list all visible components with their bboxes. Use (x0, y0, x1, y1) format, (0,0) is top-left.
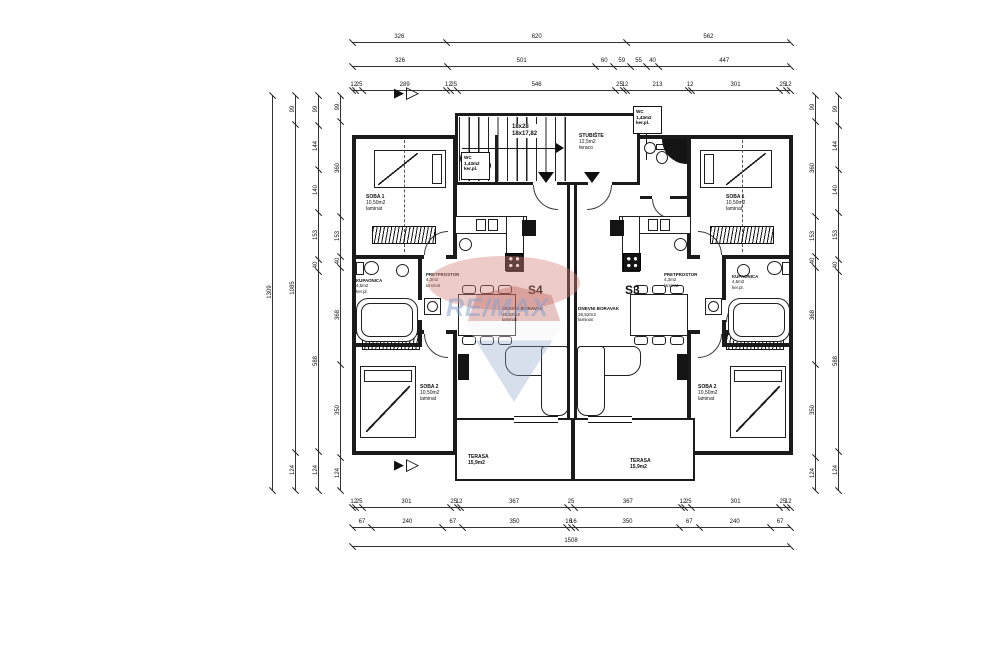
dimension-value: 562 (694, 34, 722, 40)
dimension-value: 25 (440, 82, 468, 88)
dimension-value: 367 (614, 499, 642, 505)
room-label-stubiste: STUBIŠTE 12,5m2 teraco (579, 133, 604, 151)
dimension-value: 40 (335, 247, 341, 275)
dimension-value: 360 (810, 154, 816, 182)
room-label-pretprostor-left: PRETPROSTOR 4,3m2 laminat (426, 272, 459, 288)
section-marker-bottom: ▶ ▷ (394, 456, 419, 473)
dimension-value: 350 (335, 396, 341, 424)
dimension-value: 12 (611, 82, 639, 88)
dimension-value: 99 (833, 95, 839, 123)
dimension-value: 213 (643, 82, 671, 88)
room-label-pretprostor-right: PRETPROSTOR 4,3m2 laminat (664, 272, 697, 288)
dimension-value: 240 (393, 519, 421, 525)
room-label-soba1-right: SOBA 1 10,50m2 laminat (726, 194, 745, 212)
room-label-soba2-left: SOBA 2 10,50m2 laminat (420, 384, 439, 402)
room-label-kupaonica-right: KUPAONICA 4,5m2 ker.pl. (732, 274, 758, 290)
dimension-value: 301 (722, 499, 750, 505)
dimension-value: 67 (675, 519, 703, 525)
dimension-value: 350 (614, 519, 642, 525)
dimension-graphic (352, 507, 790, 508)
room-label-soba2-right: SOBA 2 10,50m2 laminat (698, 384, 717, 402)
dimension-value: 144 (833, 132, 839, 160)
dimension-value: 367 (500, 499, 528, 505)
dimension-value: 124 (810, 459, 816, 487)
entrance-marker-s3 (584, 172, 600, 183)
dimension-graphic (352, 42, 790, 43)
dimension-value: 99 (335, 93, 341, 121)
dimension-value: 99 (810, 93, 816, 121)
wc-label-box-right: WC 1,43m2 ker.pl. (633, 106, 662, 134)
section-arrow-outline-icon: ▷ (406, 456, 419, 473)
dimension-graphic (352, 66, 790, 67)
dimension-value: 140 (313, 176, 319, 204)
dimension-value: 124 (335, 459, 341, 487)
dimension-value: 153 (833, 221, 839, 249)
apartment-label-s4: S4 (528, 283, 543, 297)
dimension-value: 301 (722, 82, 750, 88)
dimension-value: 326 (385, 34, 413, 40)
dimension-value: 40 (313, 251, 319, 279)
dimension-value: 1508 (557, 538, 585, 544)
dimension-graphic (352, 546, 790, 547)
dimension-value: 16 (559, 519, 587, 525)
dimension-value: 25 (345, 499, 373, 505)
room-label-soba1-left: SOBA 1 10,50m2 laminat (366, 194, 385, 212)
section-arrow-solid-icon: ▶ (394, 86, 404, 99)
dimension-value: 25 (345, 82, 373, 88)
dimension-value: 144 (313, 132, 319, 160)
dimension-value: 40 (639, 58, 667, 64)
dimension-value: 12 (774, 499, 802, 505)
stair-steps-b: 18x17,82 (512, 131, 537, 138)
dimension-value: 153 (810, 222, 816, 250)
room-label-terasa-right: TERASA 15,9m2 (630, 458, 651, 470)
dimension-value: 350 (810, 396, 816, 424)
section-arrow-outline-icon: ▷ (406, 84, 419, 101)
dimension-value: 67 (348, 519, 376, 525)
wc-label-box-left: WC 1,43m2 ker.pl. (461, 152, 490, 180)
dimension-value: 153 (313, 221, 319, 249)
dimension-value: 140 (833, 176, 839, 204)
floor-plan-canvas: 3266205623265016059554044712252891225546… (0, 0, 1000, 667)
dimension-value: 67 (439, 519, 467, 525)
dimension-value: 25 (674, 499, 702, 505)
dimension-value: 447 (710, 58, 738, 64)
dimension-value: 124 (833, 456, 839, 484)
dimension-value: 326 (386, 58, 414, 64)
dimension-value: 99 (290, 95, 296, 123)
room-label-dnevni-left: DNEVNI BORAVAK 26,52m2 laminat (502, 306, 543, 323)
dimension-value: 12 (774, 82, 802, 88)
dimension-value: 12 (445, 499, 473, 505)
entrance-marker-s4 (538, 172, 554, 183)
section-marker-top: ▶ ▷ (394, 84, 419, 101)
dimension-value: 588 (833, 347, 839, 375)
dimension-value: 360 (335, 154, 341, 182)
section-arrow-solid-icon: ▶ (394, 458, 404, 471)
room-label-kupaonica-left: KUPAONICA 4,5m2 ker.pl. (356, 278, 382, 294)
room-label-terasa-left: TERASA 15,9m2 (468, 454, 489, 466)
dimension-value: 301 (392, 499, 420, 505)
dimension-value: 40 (810, 247, 816, 275)
dimension-value: 124 (313, 456, 319, 484)
dimension-value: 99 (313, 95, 319, 123)
dimension-value: 546 (523, 82, 551, 88)
dimension-value: 124 (290, 456, 296, 484)
dimension-value: 40 (833, 251, 839, 279)
dimension-value: 368 (335, 301, 341, 329)
dimension-value: 368 (810, 301, 816, 329)
dimension-value: 350 (500, 519, 528, 525)
dimension-value: 25 (557, 499, 585, 505)
dimension-value: 240 (721, 519, 749, 525)
apartment-label-s3: S3 (625, 283, 640, 297)
dimension-value: 620 (523, 34, 551, 40)
dimension-value: 12 (676, 82, 704, 88)
dimension-lines: 3266205623265016059554044712252891225546… (0, 0, 1000, 667)
dimension-value: 1309 (267, 278, 273, 306)
room-label-dnevni-right: DNEVNI BORAVAK 26,52m2 laminat (578, 306, 619, 323)
dimension-value: 501 (508, 58, 536, 64)
dimension-value: 588 (313, 347, 319, 375)
stair-steps-a: 18x28 (512, 124, 537, 131)
dimension-value: 1085 (290, 274, 296, 302)
stair-step-count: 18x28 18x17,82 (510, 124, 539, 138)
dimension-value: 153 (335, 222, 341, 250)
dimension-value: 67 (766, 519, 794, 525)
